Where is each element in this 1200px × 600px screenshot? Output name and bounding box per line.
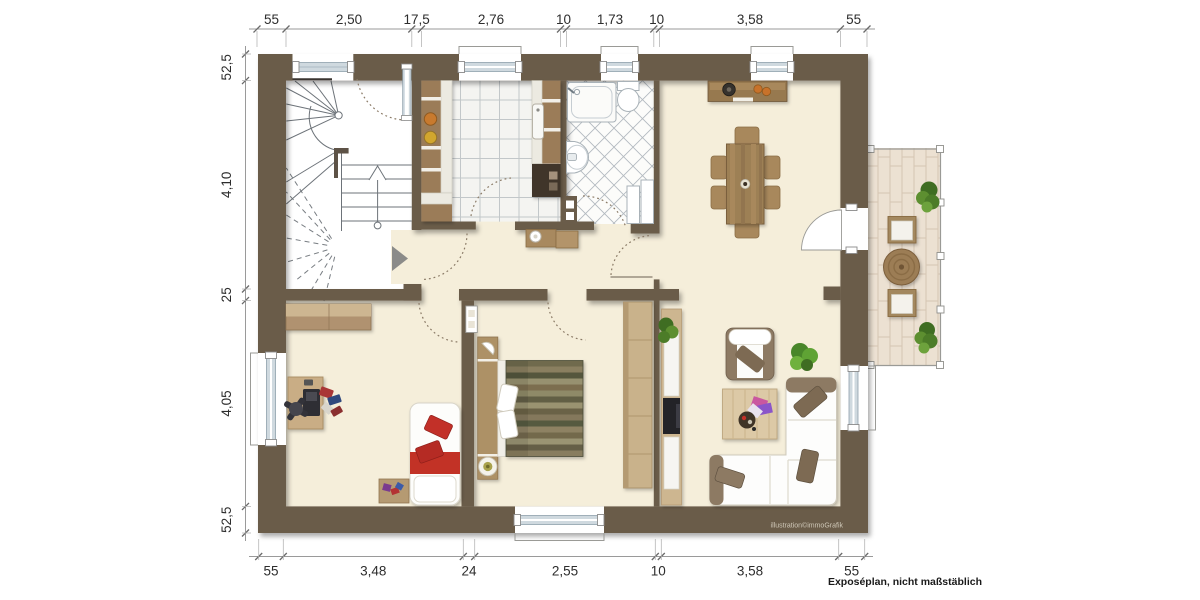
svg-text:17,5: 17,5 [403,12,429,27]
svg-text:10: 10 [649,12,664,27]
svg-text:25: 25 [219,287,234,302]
svg-text:3,58: 3,58 [737,12,763,27]
svg-text:2,50: 2,50 [336,12,362,27]
svg-text:55: 55 [263,564,278,579]
svg-text:2,76: 2,76 [478,12,504,27]
svg-text:10: 10 [556,12,571,27]
svg-text:52,5: 52,5 [219,54,234,80]
svg-text:52,5: 52,5 [219,507,234,533]
svg-text:Exposéplan, nicht maßstäblich: Exposéplan, nicht maßstäblich [828,576,982,588]
svg-text:55: 55 [846,12,861,27]
svg-text:1,73: 1,73 [597,12,623,27]
svg-text:2,55: 2,55 [552,564,578,579]
svg-text:55: 55 [264,12,279,27]
svg-text:4,10: 4,10 [219,172,234,198]
svg-text:3,48: 3,48 [360,564,386,579]
svg-text:10: 10 [651,564,666,579]
svg-text:24: 24 [461,564,477,579]
svg-text:illustration©immoGrafik: illustration©immoGrafik [771,522,844,530]
svg-text:3,58: 3,58 [737,564,763,579]
svg-text:4,05: 4,05 [219,390,234,416]
